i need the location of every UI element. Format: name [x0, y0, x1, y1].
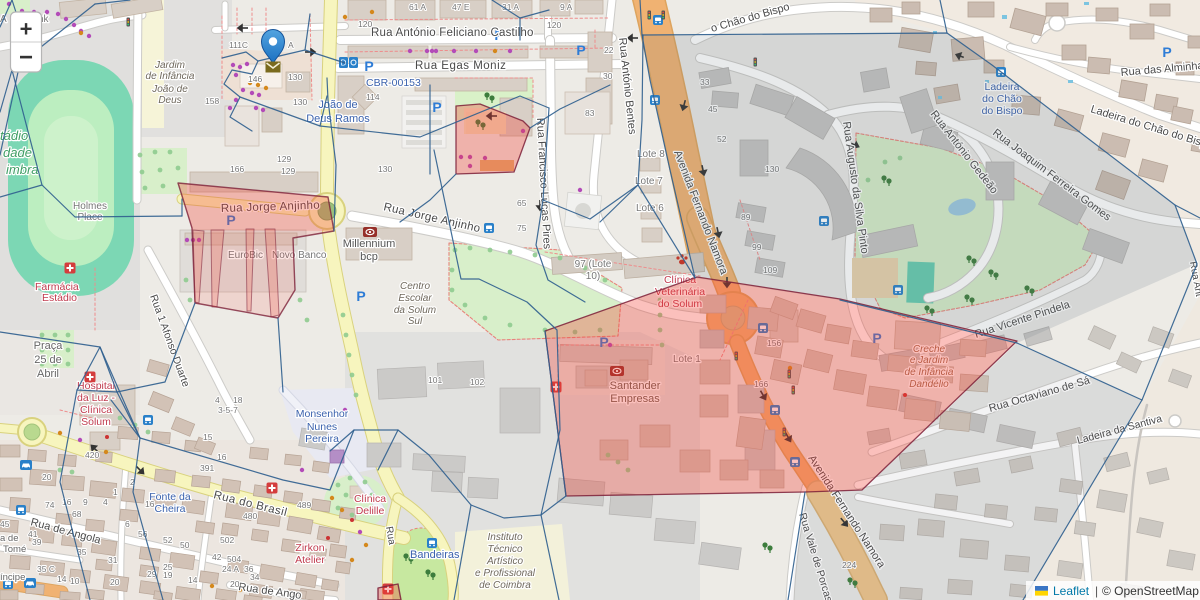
- svg-text:22: 22: [604, 45, 614, 55]
- svg-text:14: 14: [188, 575, 198, 585]
- svg-text:56: 56: [138, 529, 148, 539]
- svg-text:16: 16: [145, 499, 155, 509]
- svg-text:6: 6: [125, 519, 130, 529]
- svg-text:75: 75: [517, 223, 527, 233]
- svg-text:15: 15: [203, 432, 213, 442]
- svg-text:61 A: 61 A: [409, 2, 426, 12]
- svg-text:10): 10): [586, 271, 600, 282]
- svg-text:íncipe: íncipe: [0, 572, 25, 583]
- svg-text:de Coimbra: de Coimbra: [479, 580, 531, 591]
- svg-text:Artístico: Artístico: [486, 556, 524, 567]
- svg-text:114: 114: [366, 92, 380, 102]
- svg-text:Lote 7: Lote 7: [635, 176, 663, 187]
- svg-text:130: 130: [288, 72, 302, 82]
- svg-text:P: P: [1162, 44, 1171, 60]
- svg-text:35 C: 35 C: [37, 564, 55, 574]
- svg-text:391: 391: [200, 463, 214, 473]
- svg-text:Clínica: Clínica: [80, 404, 112, 416]
- svg-text:a de: a de: [0, 533, 19, 544]
- svg-text:da Luz -: da Luz -: [77, 392, 115, 404]
- svg-text:© OpenStreetMap: © OpenStreetMap: [1102, 584, 1199, 598]
- svg-text:74: 74: [45, 500, 55, 510]
- svg-text:9: 9: [83, 497, 88, 507]
- svg-text:101: 101: [428, 375, 442, 385]
- svg-text:bcp: bcp: [360, 251, 378, 263]
- svg-text:João de: João de: [151, 84, 188, 95]
- svg-text:129: 129: [277, 154, 291, 164]
- svg-text:83: 83: [585, 108, 595, 118]
- svg-text:A: A: [288, 40, 294, 50]
- svg-text:P: P: [364, 58, 373, 74]
- svg-text:dade: dade: [3, 145, 32, 160]
- svg-text:25: 25: [163, 562, 173, 572]
- svg-text:Escolar: Escolar: [398, 293, 432, 304]
- svg-text:de Infância: de Infância: [146, 71, 195, 82]
- svg-text:50: 50: [180, 540, 190, 550]
- svg-text:Delille: Delille: [356, 505, 385, 517]
- svg-text:45: 45: [0, 519, 10, 529]
- svg-text:Pereira: Pereira: [305, 433, 339, 445]
- svg-text:e Profissional: e Profissional: [475, 568, 536, 579]
- svg-text:42: 42: [212, 552, 222, 562]
- svg-text:24 A: 24 A: [222, 564, 239, 574]
- svg-text:68: 68: [72, 509, 82, 519]
- svg-text:39: 39: [32, 537, 42, 547]
- svg-text:97 (Lote: 97 (Lote: [575, 259, 612, 270]
- svg-text:|: |: [1095, 584, 1098, 598]
- svg-text:52: 52: [163, 535, 173, 545]
- svg-text:Zirkon: Zirkon: [295, 542, 324, 554]
- svg-text:480: 480: [243, 511, 257, 521]
- svg-text:3-5-7: 3-5-7: [218, 405, 238, 415]
- svg-text:Abril: Abril: [37, 368, 59, 380]
- svg-text:502: 502: [220, 535, 234, 545]
- svg-text:Leaflet: Leaflet: [1053, 584, 1090, 598]
- svg-text:16: 16: [62, 497, 72, 507]
- svg-text:504: 504: [227, 554, 241, 564]
- svg-text:CBR-00153: CBR-00153: [366, 77, 421, 89]
- svg-text:−: −: [19, 44, 33, 71]
- svg-text:Estádio: Estádio: [42, 292, 77, 304]
- svg-text:130: 130: [378, 164, 392, 174]
- svg-text:30: 30: [603, 71, 613, 81]
- svg-text:Bandeiras: Bandeiras: [410, 549, 460, 561]
- svg-text:166: 166: [230, 164, 244, 174]
- svg-text:imbra: imbra: [6, 162, 39, 177]
- svg-text:31: 31: [108, 555, 118, 565]
- svg-text:158: 158: [205, 96, 219, 106]
- svg-text:Solum: Solum: [81, 416, 111, 428]
- svg-text:4: 4: [215, 395, 220, 405]
- svg-text:Rua Egas Moniz: Rua Egas Moniz: [415, 60, 506, 72]
- svg-text:Instituto: Instituto: [487, 532, 522, 543]
- svg-text:Jardim: Jardim: [154, 60, 185, 71]
- svg-text:Fonte da: Fonte da: [149, 491, 191, 503]
- svg-text:34: 34: [250, 572, 260, 582]
- svg-text:31 A: 31 A: [502, 2, 519, 12]
- svg-text:47 E: 47 E: [452, 2, 470, 12]
- svg-text:146: 146: [248, 74, 262, 84]
- svg-text:Atelier: Atelier: [295, 554, 325, 566]
- svg-text:1: 1: [113, 487, 118, 497]
- svg-text:Tomé: Tomé: [3, 544, 26, 555]
- svg-text:20: 20: [110, 577, 120, 587]
- svg-text:Praça: Praça: [34, 340, 64, 352]
- svg-text:Holmes: Holmes: [73, 201, 107, 212]
- svg-text:Clínica: Clínica: [354, 493, 386, 505]
- svg-text:Sul: Sul: [408, 316, 423, 327]
- svg-text:Centro: Centro: [400, 281, 430, 292]
- svg-text:Monsenhor: Monsenhor: [296, 408, 349, 420]
- svg-text:P: P: [576, 42, 585, 58]
- svg-text:Millennium: Millennium: [343, 238, 396, 250]
- svg-text:14: 14: [57, 574, 67, 584]
- svg-text:20: 20: [230, 579, 240, 589]
- svg-text:102: 102: [470, 377, 484, 387]
- svg-text:Rua António Feliciano Castilho: Rua António Feliciano Castilho: [371, 27, 534, 39]
- svg-text:10: 10: [70, 576, 80, 586]
- svg-text:129: 129: [281, 166, 295, 176]
- svg-text:120: 120: [547, 20, 561, 30]
- svg-text:Lote 8: Lote 8: [637, 149, 665, 160]
- svg-text:25 de: 25 de: [34, 354, 62, 366]
- svg-text:18: 18: [233, 395, 243, 405]
- svg-text:65: 65: [517, 198, 527, 208]
- svg-text:4: 4: [103, 497, 108, 507]
- svg-text:Nunes: Nunes: [307, 421, 337, 433]
- svg-text:Deus: Deus: [158, 95, 181, 106]
- svg-text:120: 120: [358, 19, 372, 29]
- svg-text:da Solum: da Solum: [394, 305, 436, 316]
- svg-text:20: 20: [42, 472, 52, 482]
- svg-text:Deus Ramos: Deus Ramos: [306, 113, 370, 125]
- svg-text:P: P: [356, 288, 365, 304]
- svg-text:+: +: [20, 17, 33, 42]
- svg-text:130: 130: [293, 97, 307, 107]
- svg-text:9 A: 9 A: [560, 2, 573, 12]
- svg-text:P: P: [432, 99, 441, 115]
- svg-text:489: 489: [297, 500, 311, 510]
- svg-text:420: 420: [85, 450, 99, 460]
- svg-text:111C: 111C: [229, 40, 248, 50]
- svg-text:Cheira: Cheira: [155, 503, 186, 515]
- svg-text:Técnico: Técnico: [487, 544, 522, 555]
